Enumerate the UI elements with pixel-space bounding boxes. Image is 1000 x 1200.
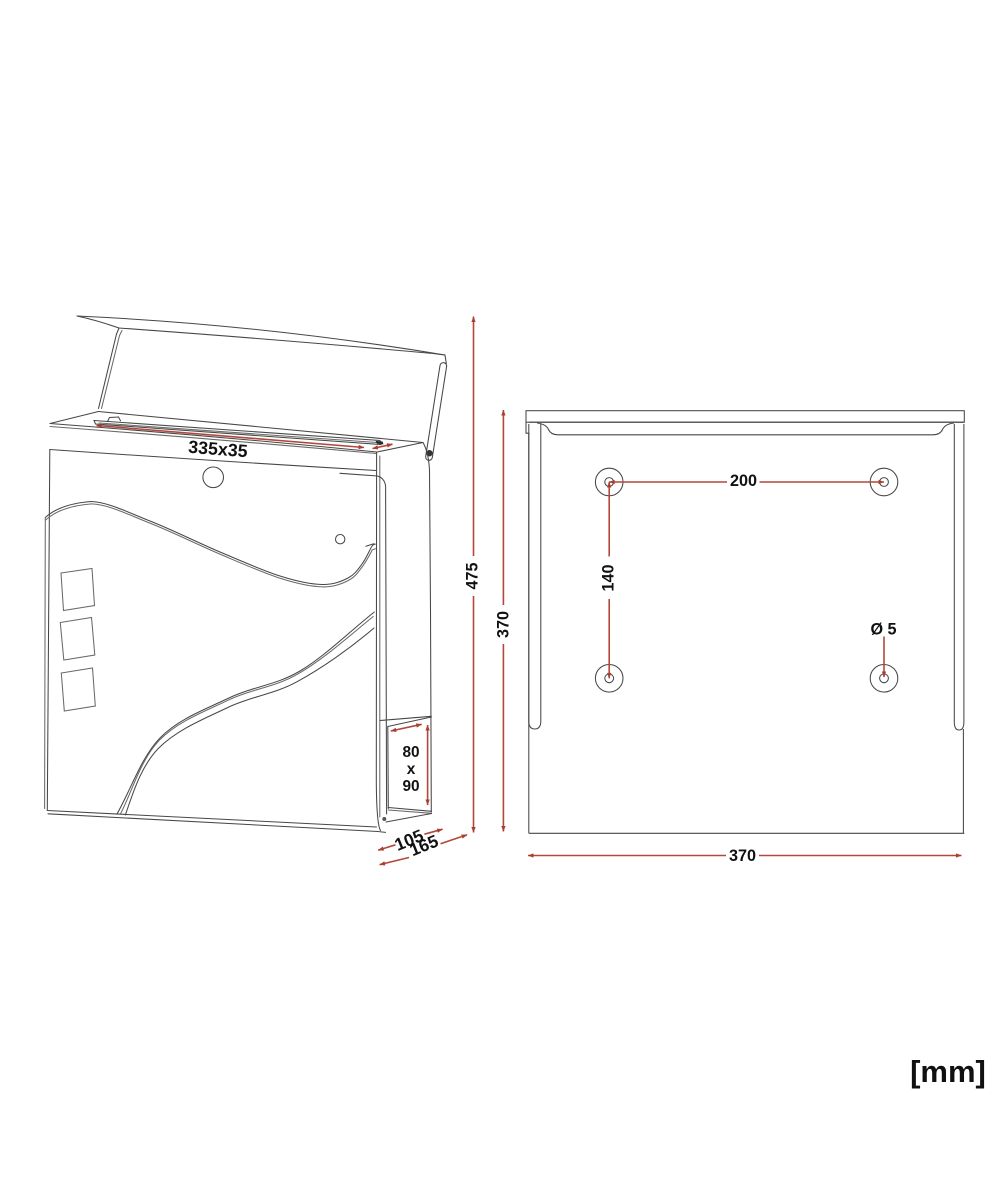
svg-text:x: x [407, 761, 416, 778]
svg-text:475: 475 [464, 562, 482, 589]
svg-text:Ø 5: Ø 5 [870, 621, 896, 639]
svg-text:80: 80 [402, 744, 419, 761]
svg-text:90: 90 [402, 778, 419, 795]
svg-text:140: 140 [600, 564, 618, 591]
svg-text:335x35: 335x35 [188, 437, 249, 462]
svg-text:[mm]: [mm] [910, 1054, 986, 1089]
svg-text:200: 200 [730, 472, 757, 490]
svg-text:370: 370 [495, 611, 513, 638]
svg-text:370: 370 [729, 847, 756, 865]
